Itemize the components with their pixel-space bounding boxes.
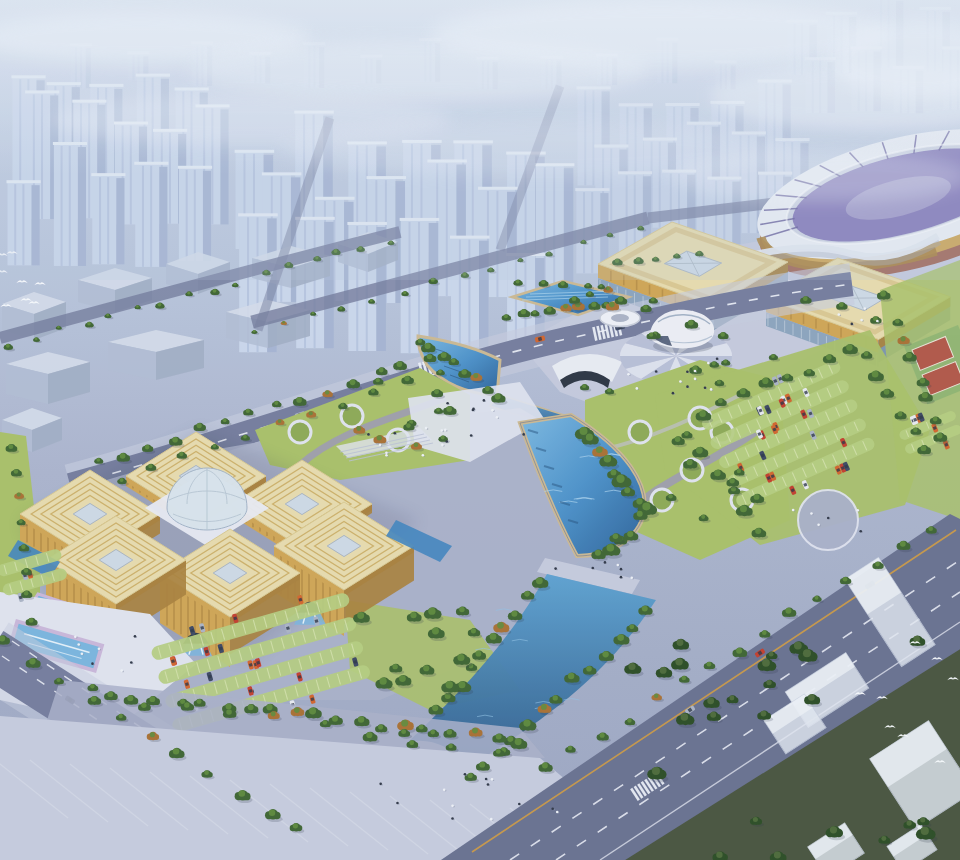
haze-overlay [0,0,960,860]
rendering-canvas [0,0,960,860]
aerial-rendering [0,0,960,860]
